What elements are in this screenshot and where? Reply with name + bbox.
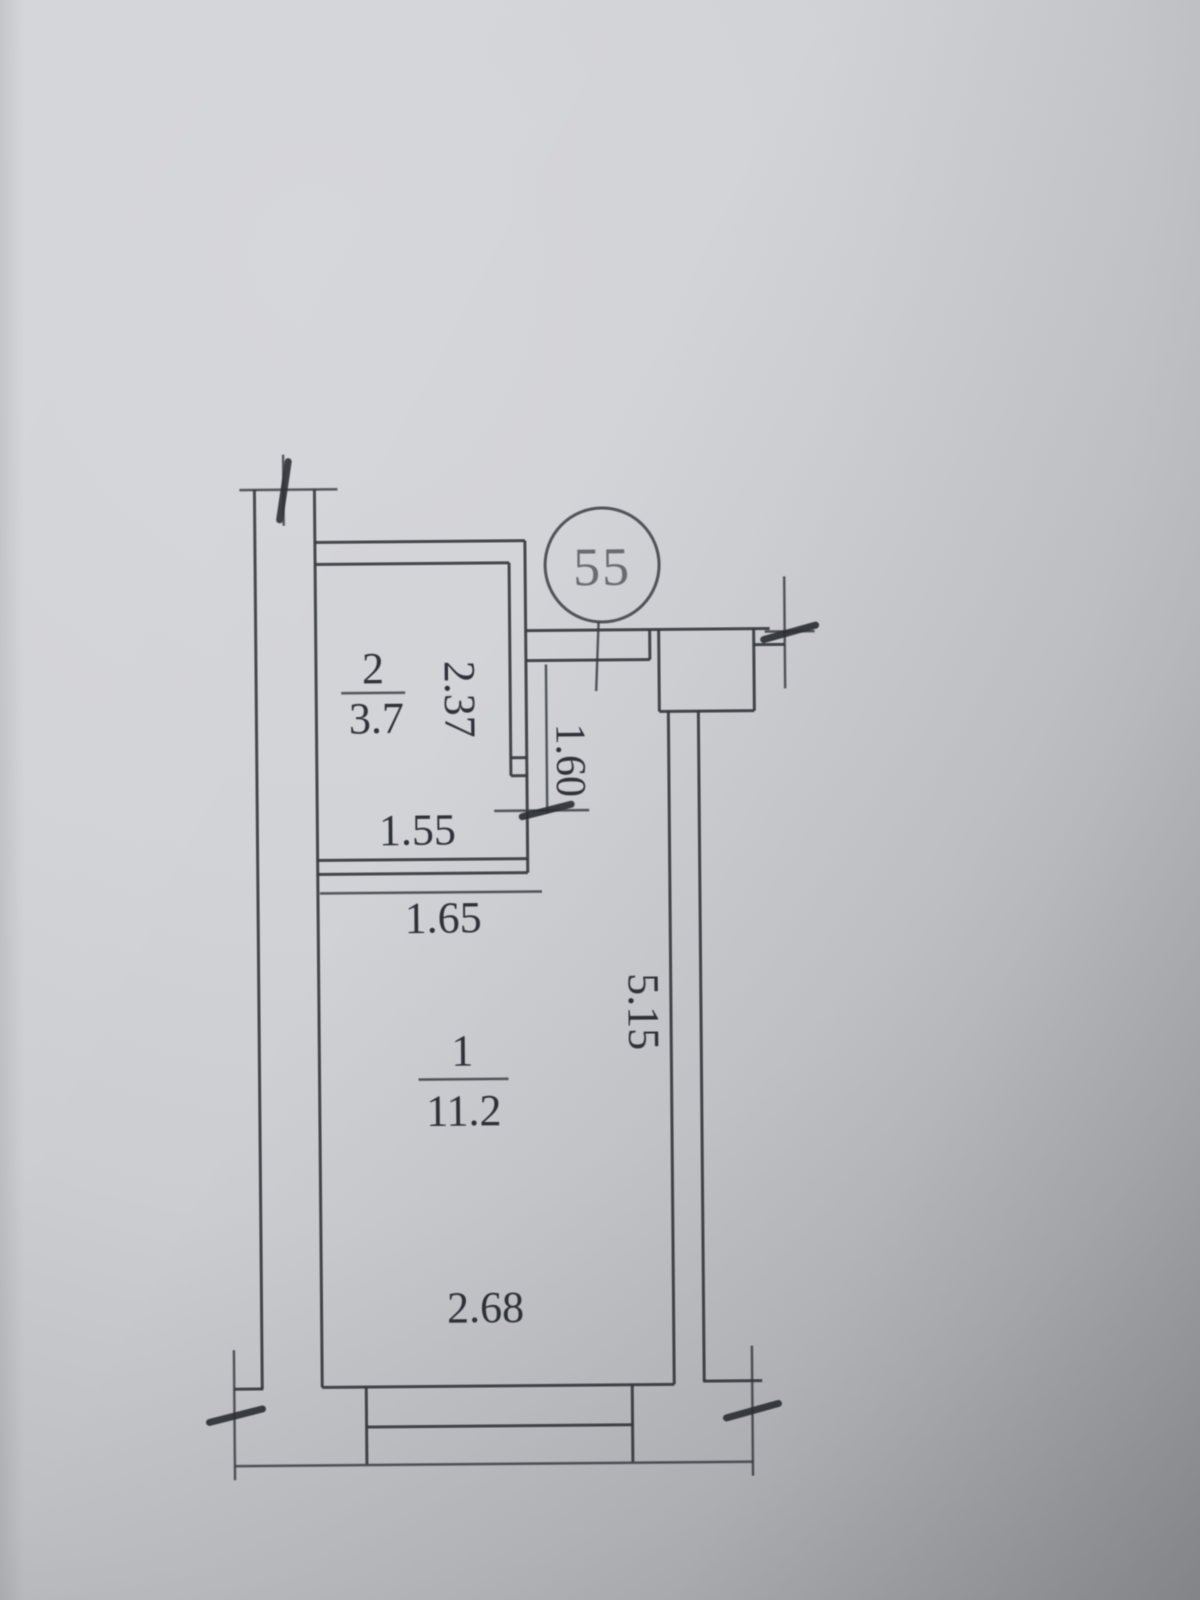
room1-area: 11.2 [426, 1086, 502, 1136]
dimension-tick [209, 1409, 262, 1422]
right-wall-outer-line [698, 711, 704, 1381]
unit-number: 55 [573, 537, 632, 598]
dim-room1-height: 5.15 [619, 973, 669, 1050]
room2-top-outer [315, 541, 525, 543]
room2-area: 3.7 [349, 694, 404, 743]
left-wall-inner-line [314, 489, 322, 1387]
unit-badge: 55 [545, 507, 661, 691]
dim-hall-depth: 1.60 [546, 723, 593, 797]
room1-fraction-bar [419, 1079, 509, 1080]
entrance-wall-bottom [526, 660, 650, 661]
room2-right-outer [525, 541, 528, 873]
room2-right-inner [509, 563, 511, 776]
window-glass-line [367, 1425, 633, 1427]
right-wall [668, 711, 704, 1384]
dim-room2-width: 1.55 [379, 805, 456, 855]
left-wall-outer-line [254, 490, 262, 1389]
room1-number: 1 [451, 1026, 473, 1075]
dim-assembly-bottom-left [209, 1350, 264, 1480]
plan-group: 55 2 3.7 1 11.2 2.37 [201, 450, 823, 1480]
room2-top-inner [315, 563, 509, 565]
floor-plan-drawing: 55 2 3.7 1 11.2 2.37 [0, 0, 1200, 1600]
wall-end-cap [703, 1381, 762, 1382]
floor-plan-photo: 55 2 3.7 1 11.2 2.37 [0, 0, 1200, 1600]
left-wall [254, 489, 322, 1388]
room2-bottom-inner [318, 859, 528, 861]
room2-number: 2 [362, 644, 384, 693]
entrance-wall [526, 628, 786, 712]
bottom-wall-inner [322, 1384, 674, 1387]
entrance-niche-right [754, 629, 755, 711]
room2-bottom-outer [318, 873, 528, 875]
dim-room1-top-width: 1.65 [404, 893, 481, 943]
dim-assembly-bottom-right [703, 1345, 779, 1476]
bottom-wall-window [322, 1384, 675, 1464]
dimension-tick [279, 462, 289, 520]
room1-label: 1 11.2 [418, 1026, 509, 1136]
dim-room2-height: 2.37 [435, 661, 485, 738]
badge-leader-line [596, 622, 600, 691]
room2-label: 2 3.7 [341, 644, 406, 744]
entrance-wall-top [526, 629, 770, 631]
bottom-datum-line [235, 1462, 753, 1467]
dim-room1-bottom-width: 2.68 [447, 1283, 524, 1333]
entrance-niche-bottom [659, 711, 754, 712]
dim-assembly-top-right [763, 576, 816, 688]
entrance-niche-left [659, 629, 660, 711]
